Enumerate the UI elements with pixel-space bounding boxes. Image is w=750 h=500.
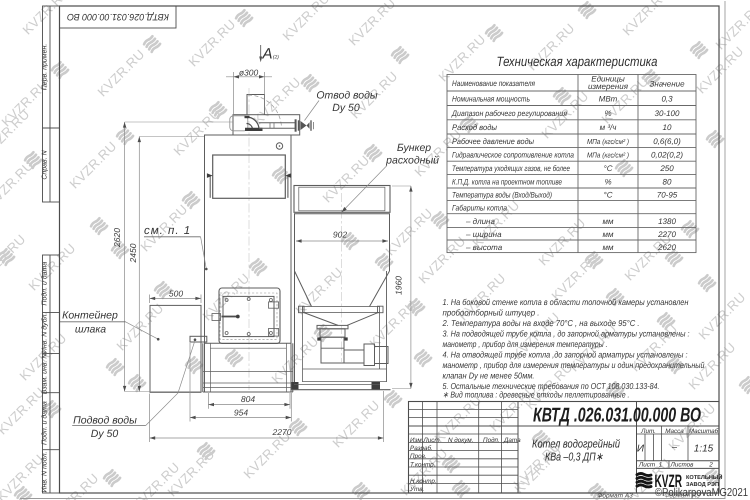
svg-text:шлака: шлака <box>75 324 106 336</box>
svg-text:2450: 2450 <box>128 243 138 263</box>
svg-text:Котел водогрейный: Котел водогрейный <box>532 439 620 451</box>
svg-text:A: A <box>262 46 273 63</box>
svg-text:Номинальная мощность: Номинальная мощность <box>452 94 530 103</box>
svg-text:измерения: измерения <box>588 82 629 91</box>
svg-text:Рабочее давление воды: Рабочее давление воды <box>452 137 534 146</box>
svg-text:Разраб.: Разраб. <box>410 445 433 452</box>
svg-text:3. На подводящей трубе котла: 3. На подводящей трубе котла , до запорн… <box>443 329 691 339</box>
svg-text:N докум.: N докум. <box>448 437 473 444</box>
svg-text:1. На боковой стенке котла в: 1. На боковой стенке котла в области топ… <box>443 297 689 307</box>
svg-text:1380: 1380 <box>658 217 676 226</box>
svg-text:©PolikarpovaMG2021: ©PolikarpovaMG2021 <box>655 487 748 499</box>
svg-text:1:15: 1:15 <box>694 444 714 455</box>
svg-text:Подвод воды: Подвод воды <box>73 415 137 427</box>
svg-text:К.П.Д. котла на проектном топл: К.П.Д. котла на проектном топливе <box>452 177 562 186</box>
svg-text:пробоотборный штуцер .: пробоотборный штуцер . <box>443 308 540 318</box>
svg-text:250: 250 <box>659 164 674 173</box>
svg-text:902: 902 <box>333 230 347 240</box>
svg-text:мм: мм <box>603 217 614 226</box>
svg-text:Наименование показателя: Наименование показателя <box>452 79 536 88</box>
svg-text:Масса: Масса <box>665 428 684 435</box>
svg-text:Т.контр.: Т.контр. <box>410 461 435 468</box>
svg-text:1960: 1960 <box>394 276 404 295</box>
svg-text:954: 954 <box>234 408 248 418</box>
svg-text:Температура уходящих газов, не: Температура уходящих газов, не более <box>452 164 570 173</box>
svg-text:– длина: – длина <box>465 217 495 226</box>
svg-text:– ширина: – ширина <box>465 230 502 239</box>
svg-text:30-100: 30-100 <box>655 109 680 118</box>
svg-text:м ³/ч: м ³/ч <box>600 123 617 132</box>
svg-text:МВт: МВт <box>599 94 618 103</box>
svg-text:Изм.Лист: Изм.Лист <box>410 437 440 444</box>
svg-text:Дата: Дата <box>503 437 521 444</box>
svg-text:500: 500 <box>169 289 183 299</box>
svg-text:Утв.: Утв. <box>409 486 424 493</box>
svg-text:2. Температура воды на входе: 2. Температура воды на входе 70°С , на в… <box>442 318 640 328</box>
svg-text:0,3: 0,3 <box>661 94 673 103</box>
svg-text:Бункер: Бункер <box>397 142 431 154</box>
svg-text:10: 10 <box>663 123 672 132</box>
svg-text:мм: мм <box>603 243 614 252</box>
svg-text:%: % <box>604 177 611 186</box>
svg-text:КОТЕЛЬНЫЙ: КОТЕЛЬНЫЙ <box>686 473 722 481</box>
svg-text:°С: °С <box>604 164 613 173</box>
svg-text:– высота: – высота <box>465 243 503 252</box>
svg-text:70-95: 70-95 <box>657 190 678 199</box>
svg-text:Dy 50: Dy 50 <box>91 428 119 440</box>
svg-text:И: И <box>637 444 645 455</box>
svg-text:КВа –0,3 ДП∗: КВа –0,3 ДП∗ <box>545 452 603 464</box>
svg-text:0,02(0,2): 0,02(0,2) <box>651 150 683 159</box>
svg-text:2270: 2270 <box>272 427 292 437</box>
svg-text:мм: мм <box>603 230 614 239</box>
svg-text:–: – <box>671 442 678 452</box>
svg-text:Масштаб: Масштаб <box>689 428 719 435</box>
svg-text:Подп. и дата: Подп. и дата <box>41 401 49 445</box>
svg-text:Формат А3: Формат А3 <box>597 492 633 499</box>
svg-text:%: % <box>604 109 611 118</box>
svg-text:см. п. 1: см. п. 1 <box>144 225 191 237</box>
svg-text:расходный: расходный <box>385 155 439 167</box>
svg-text:Справ. N: Справ. N <box>42 149 49 179</box>
svg-text:Значение: Значение <box>649 80 685 89</box>
svg-text:4. На отводящей трубе котла ,: 4. На отводящей трубе котла ,до запорной… <box>443 350 689 360</box>
svg-text:0,6(6,0): 0,6(6,0) <box>653 137 681 146</box>
svg-text:°С: °С <box>604 190 613 199</box>
svg-text:Температура воды (Вход/Выход): Температура воды (Вход/Выход) <box>452 190 552 199</box>
svg-text:Листов: Листов <box>670 462 695 469</box>
svg-text:КВТД .026.031.00.000 ВО: КВТД .026.031.00.000 ВО <box>533 405 701 427</box>
svg-text:ø300: ø300 <box>239 67 259 77</box>
svg-text:КВТД.026.031.00.000 ВО: КВТД.026.031.00.000 ВО <box>67 12 169 22</box>
svg-text:Лист: Лист <box>638 462 655 469</box>
svg-text:Габариты котла: Габариты котла <box>452 204 507 213</box>
svg-text:Н.контр.: Н.контр. <box>410 478 437 485</box>
svg-text:МПа (кгс/см² ): МПа (кгс/см² ) <box>587 137 629 146</box>
svg-text:Инв. N подл.: Инв. N подл. <box>41 451 49 492</box>
svg-text:1: 1 <box>659 462 663 469</box>
svg-text:2270: 2270 <box>657 230 676 239</box>
svg-text:Расход воды: Расход воды <box>452 123 497 132</box>
svg-text:Отвод воды: Отвод воды <box>316 89 378 101</box>
svg-text:(2): (2) <box>273 55 279 61</box>
svg-text:804: 804 <box>241 394 255 404</box>
svg-text:манометр , прибор для измерен: манометр , прибор для измерения температ… <box>443 339 608 349</box>
svg-text:Dy 50: Dy 50 <box>332 102 360 114</box>
svg-text:Контейнер: Контейнер <box>62 310 118 322</box>
svg-text:∗ Вид топлива : древесные от: ∗ Вид топлива : древесные отходы пеллети… <box>443 390 630 400</box>
svg-text:Подп.: Подп. <box>483 437 500 444</box>
svg-text:Техническая характеристика: Техническая характеристика <box>497 54 658 69</box>
svg-text:2: 2 <box>708 462 713 469</box>
svg-text:80: 80 <box>663 177 672 186</box>
svg-text:МПа (кгс/см² ): МПа (кгс/см² ) <box>587 150 629 159</box>
svg-text:Перв. примен.: Перв. примен. <box>42 44 49 91</box>
svg-text:Взам. инв. N: Взам. инв. N <box>42 353 49 395</box>
svg-text:клапан Dу не менее 50мм.: клапан Dу не менее 50мм. <box>443 371 535 381</box>
svg-text:Лит.: Лит. <box>640 428 656 435</box>
svg-text:Гидравлическое сопротивление к: Гидравлическое сопротивление котла <box>452 150 574 159</box>
svg-text:2620: 2620 <box>657 243 676 252</box>
svg-text:Подп. и дата: Подп. и дата <box>41 262 49 306</box>
svg-text:2620: 2620 <box>112 228 122 248</box>
svg-text:Диапазон рабочего регулировани: Диапазон рабочего регулирования <box>451 109 568 118</box>
svg-text:манометр , прибор для измерен: манометр , прибор для измерения температ… <box>443 360 705 370</box>
svg-text:Пров.: Пров. <box>410 453 427 460</box>
svg-text:Инв. N дубл.: Инв. N дубл. <box>41 313 49 354</box>
